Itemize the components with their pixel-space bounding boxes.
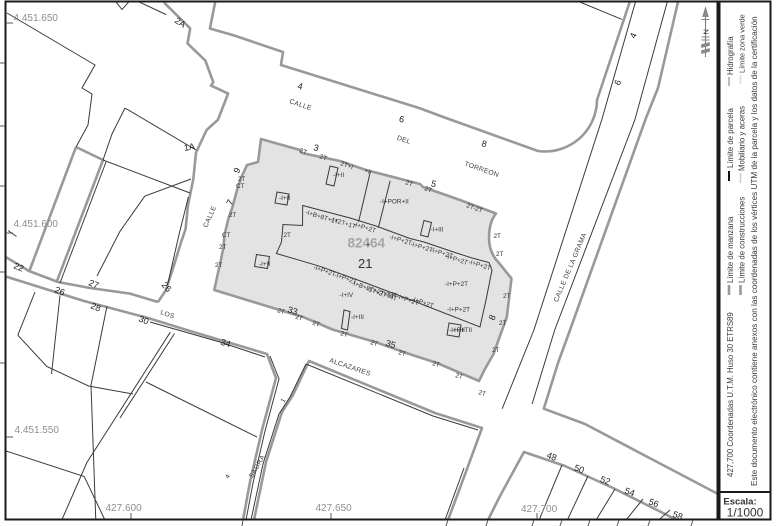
svg-text:-I+II: -I+II [333, 172, 344, 179]
svg-text:2T: 2T [499, 320, 507, 327]
svg-text:2T: 2T [215, 262, 223, 269]
svg-text:-I+P+2T: -I+P+2T [447, 307, 470, 314]
svg-text:1A: 1A [183, 141, 196, 153]
svg-text:-I+IV: -I+IV [340, 292, 354, 299]
svg-text:CT: CT [222, 232, 231, 239]
svg-text:21: 21 [358, 256, 372, 271]
svg-text:Límite zona verde: Límite zona verde [738, 14, 747, 73]
svg-text:Hidrografía: Hidrografía [726, 36, 735, 75]
svg-text:2T: 2T [494, 233, 502, 240]
svg-text:4.451.550: 4.451.550 [15, 425, 60, 436]
svg-text:2T: 2T [219, 244, 227, 251]
svg-text:Mobiliario y aceras: Mobiliario y aceras [738, 106, 747, 171]
svg-text:Límite de construcciones: Límite de construcciones [738, 197, 747, 283]
svg-text:2T: 2T [503, 293, 511, 300]
svg-text:2T: 2T [238, 176, 246, 183]
svg-text:427.700: 427.700 [521, 504, 558, 515]
svg-text:-I+III: -I+III [452, 327, 465, 334]
svg-text:-I+P+2T: -I+P+2T [445, 281, 468, 288]
svg-text:427.650: 427.650 [316, 503, 353, 514]
svg-text:2T: 2T [492, 347, 500, 354]
svg-text:-I+POR+II: -I+POR+II [380, 199, 409, 206]
svg-text:-I+II: -I+II [279, 195, 290, 202]
svg-text:+: + [366, 242, 370, 249]
svg-text:-I+II: -I+II [259, 261, 270, 268]
svg-text:-I+III: -I+III [431, 227, 444, 234]
svg-text:Este documento electrónico con: Este documento electrónico contiene anex… [750, 16, 759, 486]
svg-text:427,700 Coordenadas U.T.M. Hus: 427,700 Coordenadas U.T.M. Huso 30 ETRS8… [726, 312, 735, 477]
svg-text:4.451.650: 4.451.650 [14, 13, 59, 24]
svg-text:1/1000: 1/1000 [727, 506, 764, 520]
svg-text:N: N [702, 29, 711, 34]
svg-text:-I+III: -I+III [351, 314, 364, 321]
svg-text:Límite de parcela: Límite de parcela [726, 108, 735, 168]
svg-text:2T: 2T [229, 212, 237, 219]
svg-text:CT: CT [236, 183, 245, 190]
svg-text:2T: 2T [496, 251, 504, 258]
svg-text:4.451.600: 4.451.600 [14, 219, 59, 230]
svg-text:2T: 2T [284, 232, 292, 239]
svg-text:427.600: 427.600 [106, 503, 143, 514]
svg-text:Límite de manzana: Límite de manzana [726, 216, 735, 283]
